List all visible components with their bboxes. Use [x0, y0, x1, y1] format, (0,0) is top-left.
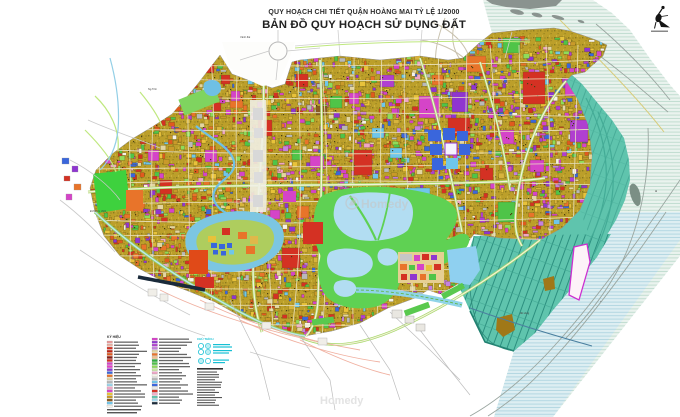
- svg-text:Homedy: Homedy: [361, 197, 409, 211]
- svg-text:CHÚ THÍCH: CHÚ THÍCH: [197, 336, 214, 341]
- svg-text:KÝ HIỆU: KÝ HIỆU: [107, 334, 121, 339]
- svg-text:Homedy: Homedy: [320, 395, 364, 407]
- svg-text:BẢN ĐỒ QUY HOẠCH SỬ DỤNG ĐẤT: BẢN ĐỒ QUY HOẠCH SỬ DỤNG ĐẤT: [262, 18, 466, 31]
- svg-text:Vành đai: Vành đai: [240, 35, 251, 39]
- svg-text:đê sông: đê sông: [520, 311, 530, 315]
- svg-text:Ng.Trãi: Ng.Trãi: [148, 87, 157, 91]
